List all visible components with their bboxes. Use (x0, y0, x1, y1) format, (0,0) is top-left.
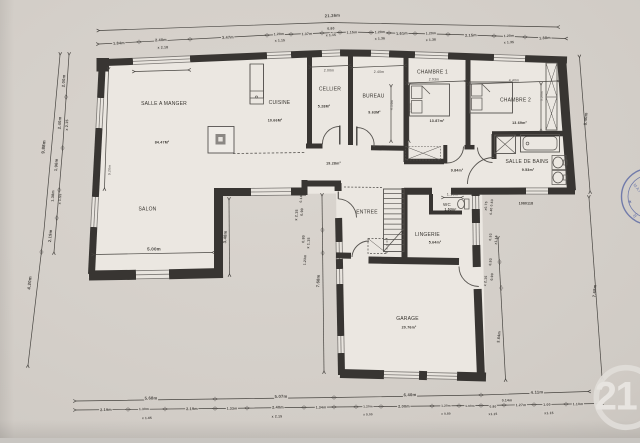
svg-text:3.48m: 3.48m (222, 230, 228, 243)
svg-text:9.84m²: 9.84m² (451, 169, 464, 173)
svg-text:0.90: 0.90 (300, 208, 305, 216)
svg-text:CHAMBRE 2: CHAMBRE 2 (500, 98, 531, 104)
svg-text:0.80: 0.80 (489, 405, 496, 409)
svg-text:5.68m: 5.68m (144, 395, 157, 400)
svg-text:4.50m: 4.50m (408, 103, 412, 113)
svg-text:x 5.00: x 5.00 (363, 412, 373, 416)
svg-text:2.00m: 2.00m (324, 69, 334, 73)
svg-text:1.23m: 1.23m (303, 254, 308, 265)
svg-text:x 2.15: x 2.15 (65, 119, 70, 130)
svg-text:x1.15: x1.15 (494, 235, 499, 245)
svg-text:6.40m: 6.40m (403, 392, 416, 397)
svg-text:x 2.15: x 2.15 (294, 209, 299, 220)
svg-text:x 0.80: x 0.80 (441, 412, 451, 416)
svg-text:5.00m: 5.00m (147, 247, 161, 252)
svg-text:1.33m: 1.33m (227, 406, 238, 410)
svg-text:0.93: 0.93 (488, 258, 493, 266)
svg-text:ENTREE: ENTREE (356, 210, 378, 216)
svg-text:1.27m: 1.27m (516, 403, 527, 407)
svg-text:9.63M²: 9.63M² (368, 111, 381, 115)
svg-text:2.19m: 2.19m (186, 407, 198, 411)
svg-text:1.20m: 1.20m (363, 404, 373, 408)
svg-text:21: 21 (595, 375, 638, 419)
svg-text:1.30m: 1.30m (139, 407, 149, 411)
svg-text:13.69m²: 13.69m² (512, 121, 527, 125)
svg-text:7.68m: 7.68m (315, 274, 321, 287)
svg-text:1.63m²: 1.63m² (445, 208, 458, 212)
svg-text:CUISINE: CUISINE (269, 100, 291, 106)
svg-text:2.40m: 2.40m (374, 70, 384, 74)
svg-text:x 1.36: x 1.36 (375, 36, 386, 41)
svg-text:1.38m: 1.38m (51, 190, 56, 202)
svg-text:1060118: 1060118 (519, 202, 533, 206)
svg-text:1.20m: 1.20m (375, 30, 386, 35)
svg-text:1.20m: 1.20m (426, 31, 437, 36)
svg-text:1.20m: 1.20m (441, 404, 451, 408)
svg-text:1.37m: 1.37m (302, 32, 313, 37)
svg-text:WC: WC (443, 202, 451, 207)
svg-text:21.26m: 21.26m (325, 13, 341, 19)
svg-text:SALLE A MANGER: SALLE A MANGER (141, 101, 187, 107)
svg-text:1.15m: 1.15m (347, 30, 358, 35)
svg-text:9.53m²: 9.53m² (522, 168, 535, 172)
svg-text:x 1.15: x 1.15 (306, 237, 311, 248)
svg-text:0.14: 0.14 (299, 195, 303, 202)
svg-text:2.93m: 2.93m (429, 78, 439, 82)
svg-text:x 1.15: x 1.15 (275, 38, 286, 43)
svg-text:9.20m: 9.20m (107, 165, 111, 175)
svg-text:CELLIER: CELLIER (319, 87, 341, 93)
svg-text:0.80: 0.80 (301, 235, 306, 243)
svg-text:4.40m: 4.40m (509, 79, 519, 83)
svg-text:4.14m: 4.14m (390, 100, 394, 111)
svg-text:x 2.18: x 2.18 (158, 45, 169, 50)
svg-text:1.00m: 1.00m (465, 404, 475, 408)
svg-text:1.34m: 1.34m (316, 405, 327, 409)
svg-text:5.07m: 5.07m (274, 394, 287, 399)
svg-text:5.64m²: 5.64m² (429, 241, 442, 245)
svg-text:10.66M²: 10.66M² (268, 119, 283, 123)
svg-text:x 2.15: x 2.15 (272, 414, 283, 418)
svg-text:CHAMBRE 1: CHAMBRE 1 (417, 70, 448, 76)
svg-text:19.28m²: 19.28m² (326, 162, 341, 166)
svg-text:1.10m: 1.10m (447, 193, 459, 197)
svg-text:84.47M²: 84.47M² (155, 141, 170, 145)
svg-text:2.40m: 2.40m (155, 38, 167, 43)
svg-text:BUREAU: BUREAU (362, 94, 384, 100)
svg-text:0.14m: 0.14m (502, 398, 513, 402)
svg-text:x 1.65: x 1.65 (142, 416, 152, 420)
svg-text:SALON: SALON (139, 207, 157, 213)
svg-text:x1.15: x1.15 (544, 411, 554, 415)
svg-text:1.10m: 1.10m (573, 402, 584, 406)
svg-text:2.15m: 2.15m (465, 33, 477, 38)
svg-text:7.68m: 7.68m (592, 284, 598, 297)
svg-text:1.20m: 1.20m (504, 34, 515, 39)
svg-text:x 1.55: x 1.55 (58, 193, 63, 204)
svg-text:5.28M²: 5.28M² (318, 105, 331, 109)
svg-text:0.90: 0.90 (490, 273, 495, 281)
svg-text:1.96m: 1.96m (53, 158, 59, 171)
svg-text:2.00m: 2.00m (398, 404, 410, 408)
svg-text:x 1.35: x 1.35 (504, 40, 515, 45)
svg-text:1.20m: 1.20m (274, 32, 285, 37)
svg-text:20.76m²: 20.76m² (402, 326, 417, 330)
svg-text:3.47m: 3.47m (222, 35, 234, 40)
svg-text:13.87m²: 13.87m² (430, 119, 445, 123)
svg-text:GARAGE: GARAGE (396, 316, 419, 322)
svg-text:5.20m: 5.20m (540, 91, 544, 101)
svg-text:1.84m: 1.84m (113, 41, 125, 46)
svg-text:0.80: 0.80 (327, 26, 334, 30)
svg-text:0.93: 0.93 (488, 233, 493, 241)
svg-text:2.40m: 2.40m (57, 116, 63, 129)
svg-text:SALLE DE BAINS: SALLE DE BAINS (505, 159, 549, 165)
svg-text:LINGERIE: LINGERIE (415, 232, 440, 238)
svg-text:2.19m: 2.19m (100, 408, 112, 412)
svg-text:1.61m: 1.61m (396, 31, 408, 36)
svg-text:x0.75: x0.75 (484, 201, 489, 211)
svg-text:1.88m: 1.88m (539, 36, 551, 41)
svg-text:2.00m: 2.00m (61, 74, 67, 87)
svg-text:4.11m: 4.11m (531, 389, 544, 394)
svg-text:x1.15: x1.15 (488, 412, 497, 416)
svg-text:x 1.36: x 1.36 (426, 38, 437, 43)
svg-text:x 1.15: x 1.15 (326, 33, 337, 38)
svg-text:1.00: 1.00 (543, 403, 550, 407)
svg-text:2.40m: 2.40m (272, 405, 284, 409)
